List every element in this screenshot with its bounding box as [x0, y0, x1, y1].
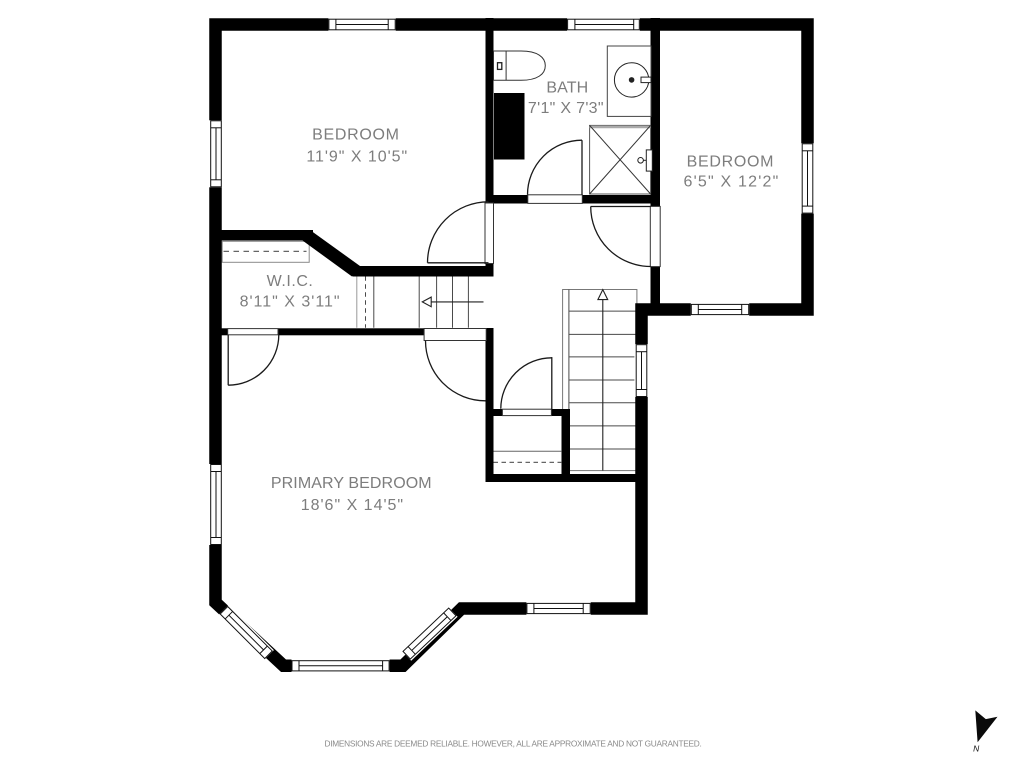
svg-text:PRIMARY BEDROOM: PRIMARY BEDROOM: [271, 475, 432, 492]
svg-text:DIMENSIONS ARE DEEMED RELIABLE: DIMENSIONS ARE DEEMED RELIABLE. HOWEVER,…: [324, 738, 701, 748]
svg-text:8'11" X 3'11": 8'11" X 3'11": [240, 293, 341, 310]
svg-text:BEDROOM: BEDROOM: [687, 154, 775, 171]
svg-text:6'5" X 12'2": 6'5" X 12'2": [684, 174, 780, 191]
svg-text:18'6" X 14'5": 18'6" X 14'5": [301, 497, 404, 514]
svg-text:BATH: BATH: [546, 79, 588, 96]
svg-text:W.I.C.: W.I.C.: [267, 273, 314, 290]
svg-text:11'9" X 10'5": 11'9" X 10'5": [306, 148, 408, 165]
svg-text:BEDROOM: BEDROOM: [312, 126, 400, 143]
svg-text:N: N: [973, 744, 980, 754]
svg-text:7'1" X 7'3": 7'1" X 7'3": [528, 100, 604, 117]
